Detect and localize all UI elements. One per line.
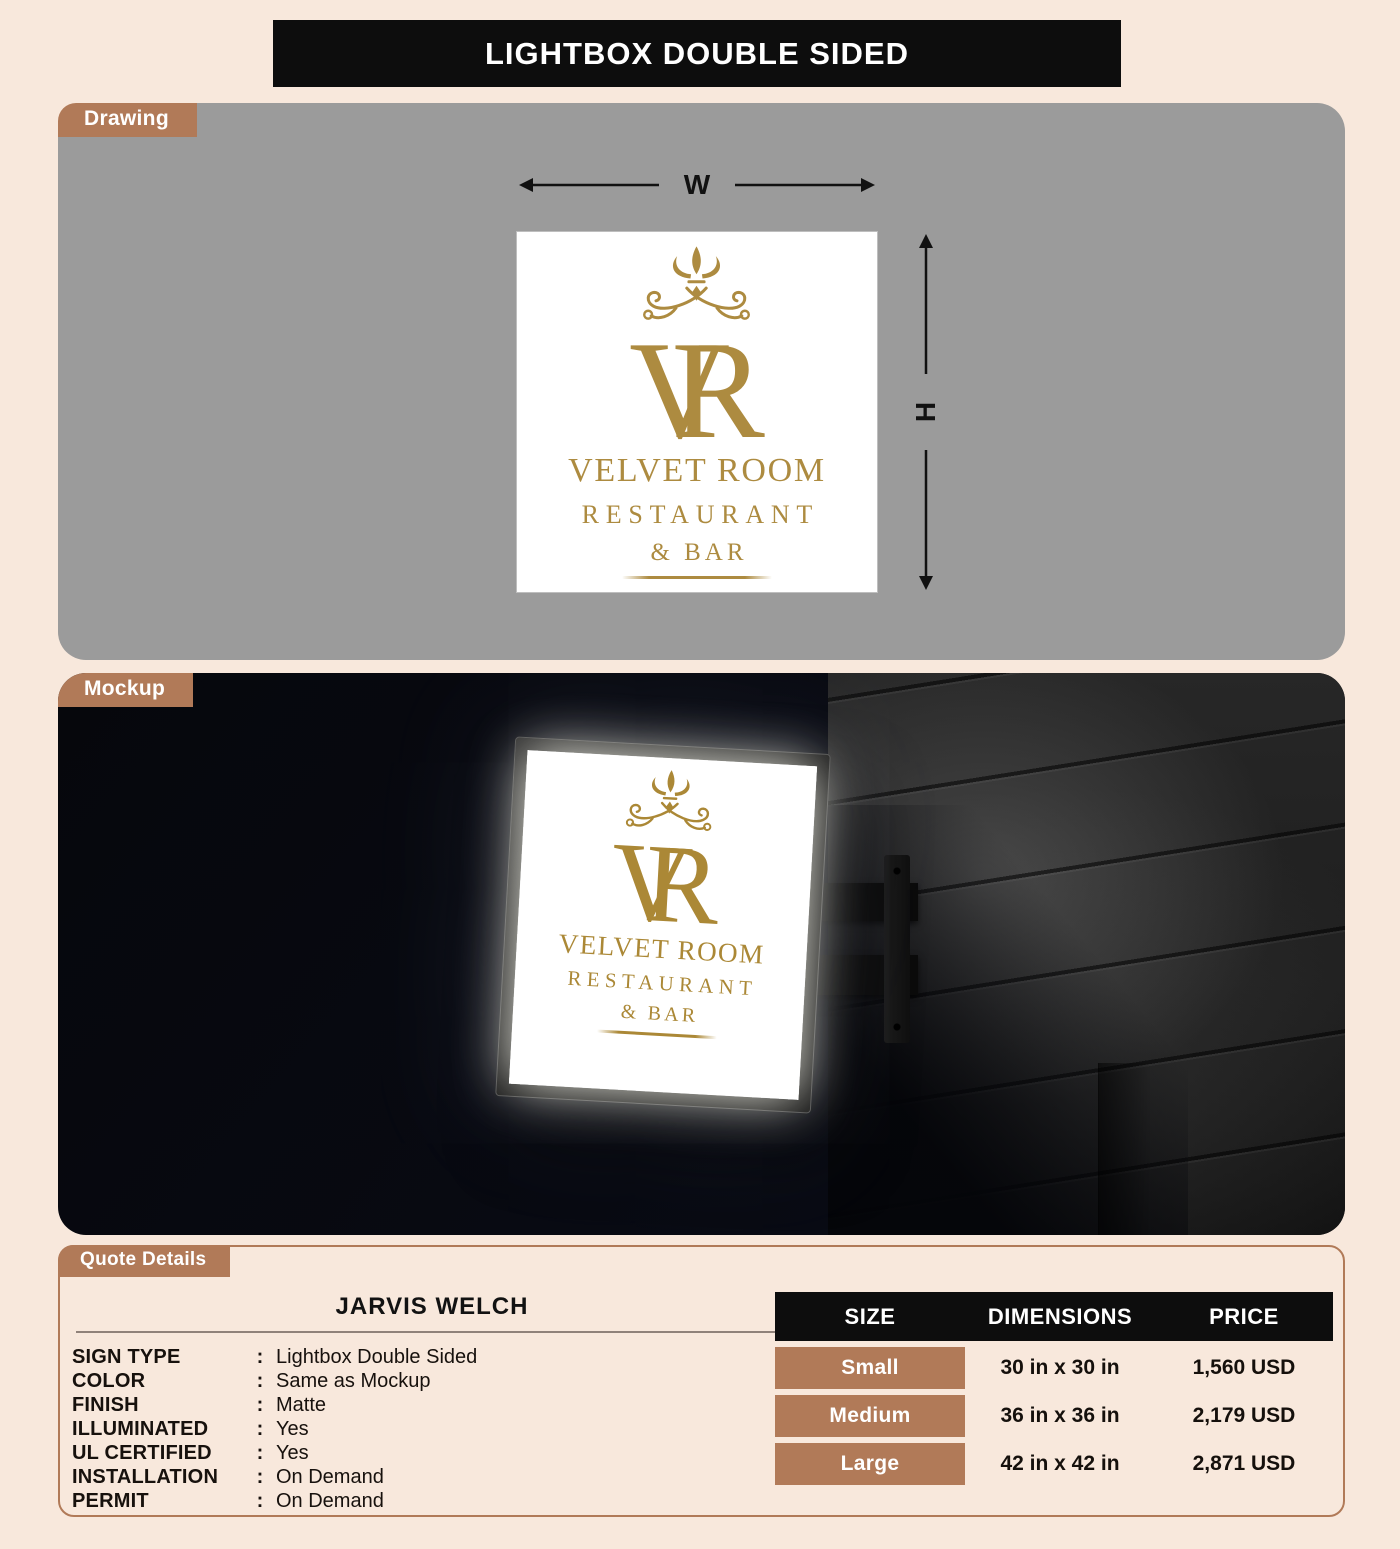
width-arrow-right-icon	[735, 174, 877, 196]
detail-label: INSTALLATION	[72, 1465, 252, 1489]
customer-divider	[76, 1331, 788, 1333]
width-dimension: W	[517, 169, 877, 201]
price-value: 1,560 USD	[1155, 1356, 1333, 1380]
detail-value: On Demand	[268, 1465, 788, 1489]
height-label: H	[910, 402, 942, 422]
logo-monogram-r: R	[641, 821, 723, 949]
page-title: LIGHTBOX DOUBLE SIDED	[273, 20, 1121, 87]
detail-row-sign-type: SIGN TYPE : Lightbox Double Sided	[72, 1345, 788, 1369]
quote-details-panel: Quote Details JARVIS WELCH SIGN TYPE : L…	[58, 1245, 1345, 1517]
sign-face-mockup: VR VELVET ROOM RESTAURANT & BAR	[509, 750, 817, 1100]
drawing-tab: Drawing	[58, 103, 197, 137]
detail-value: Yes	[268, 1417, 788, 1441]
logo-bar-text: & BAR	[617, 1002, 699, 1026]
sign-bracket-plate	[884, 855, 910, 1043]
detail-row-illuminated: ILLUMINATED : Yes	[72, 1417, 788, 1441]
mockup-tab: Mockup	[58, 673, 193, 707]
quote-details-tab: Quote Details	[58, 1245, 230, 1277]
detail-value: Lightbox Double Sided	[268, 1345, 788, 1369]
dimensions-value: 30 in x 30 in	[965, 1356, 1155, 1380]
quote-sheet-page: LIGHTBOX DOUBLE SIDED Drawing W H	[0, 0, 1400, 1549]
logo-restaurant-text: RESTAURANT	[562, 969, 758, 1001]
dimensions-value: 42 in x 42 in	[965, 1452, 1155, 1476]
size-option-small[interactable]: Small	[775, 1347, 965, 1389]
column-header-size: SIZE	[775, 1304, 965, 1330]
price-value: 2,871 USD	[1155, 1452, 1333, 1476]
sign-face-drawing: VR VELVET ROOM RESTAURANT & BAR	[517, 232, 877, 592]
detail-label: SIGN TYPE	[72, 1345, 252, 1369]
detail-row-color: COLOR : Same as Mockup	[72, 1369, 788, 1393]
detail-colon: :	[252, 1345, 268, 1369]
dimensions-value: 36 in x 36 in	[965, 1404, 1155, 1428]
width-label: W	[684, 169, 710, 201]
quote-details-list: SIGN TYPE : Lightbox Double Sided COLOR …	[72, 1345, 788, 1513]
detail-row-installation: INSTALLATION : On Demand	[72, 1465, 788, 1489]
velvet-room-logo: VR VELVET ROOM RESTAURANT & BAR	[568, 232, 826, 592]
detail-colon: :	[252, 1393, 268, 1417]
detail-colon: :	[252, 1417, 268, 1441]
detail-label: PERMIT	[72, 1489, 252, 1513]
detail-label: FINISH	[72, 1393, 252, 1417]
logo-monogram-r: R	[671, 313, 764, 468]
logo-name-text: VELVET ROOM	[558, 930, 765, 969]
detail-colon: :	[252, 1465, 268, 1489]
customer-name: JARVIS WELCH	[76, 1293, 788, 1321]
height-arrow-up-icon	[915, 232, 937, 374]
detail-value: Same as Mockup	[268, 1369, 788, 1393]
detail-colon: :	[252, 1369, 268, 1393]
table-row-medium: Medium 36 in x 36 in 2,179 USD	[775, 1395, 1333, 1437]
detail-label: COLOR	[72, 1369, 252, 1393]
logo-bar-text: & BAR	[646, 540, 747, 565]
detail-colon: :	[252, 1441, 268, 1465]
table-row-large: Large 42 in x 42 in 2,871 USD	[775, 1443, 1333, 1485]
velvet-room-logo: VR VELVET ROOM RESTAURANT & BAR	[551, 753, 775, 1098]
height-arrow-down-icon	[915, 450, 937, 592]
price-value: 2,179 USD	[1155, 1404, 1333, 1428]
logo-underline	[597, 1030, 717, 1040]
width-arrow-left-icon	[517, 174, 659, 196]
detail-row-ul-certified: UL CERTIFIED : Yes	[72, 1441, 788, 1465]
logo-monogram: VR	[629, 335, 765, 447]
detail-label: UL CERTIFIED	[72, 1441, 252, 1465]
logo-restaurant-text: RESTAURANT	[575, 502, 819, 528]
height-dimension: H	[906, 232, 946, 592]
pricing-table: SIZE DIMENSIONS PRICE Small 30 in x 30 i…	[775, 1292, 1333, 1485]
logo-monogram: VR	[609, 837, 722, 933]
size-option-large[interactable]: Large	[775, 1443, 965, 1485]
detail-value: Yes	[268, 1441, 788, 1465]
pricing-table-header: SIZE DIMENSIONS PRICE	[775, 1292, 1333, 1341]
size-option-medium[interactable]: Medium	[775, 1395, 965, 1437]
detail-value: On Demand	[268, 1489, 788, 1513]
column-header-price: PRICE	[1155, 1304, 1333, 1330]
column-header-dimensions: DIMENSIONS	[965, 1304, 1155, 1330]
table-row-small: Small 30 in x 30 in 1,560 USD	[775, 1347, 1333, 1389]
detail-row-permit: PERMIT : On Demand	[72, 1489, 788, 1513]
detail-row-finish: FINISH : Matte	[72, 1393, 788, 1417]
detail-label: ILLUMINATED	[72, 1417, 252, 1441]
drawing-panel: Drawing W H	[58, 103, 1345, 660]
detail-value: Matte	[268, 1393, 788, 1417]
wall-corner-edge	[1098, 1063, 1169, 1235]
lightbox-sign-mockup: VR VELVET ROOM RESTAURANT & BAR	[495, 736, 831, 1113]
mockup-panel: VR VELVET ROOM RESTAURANT & BAR Mockup	[58, 673, 1345, 1235]
detail-colon: :	[252, 1489, 268, 1513]
logo-name-text: VELVET ROOM	[568, 454, 826, 488]
logo-underline	[622, 576, 772, 579]
